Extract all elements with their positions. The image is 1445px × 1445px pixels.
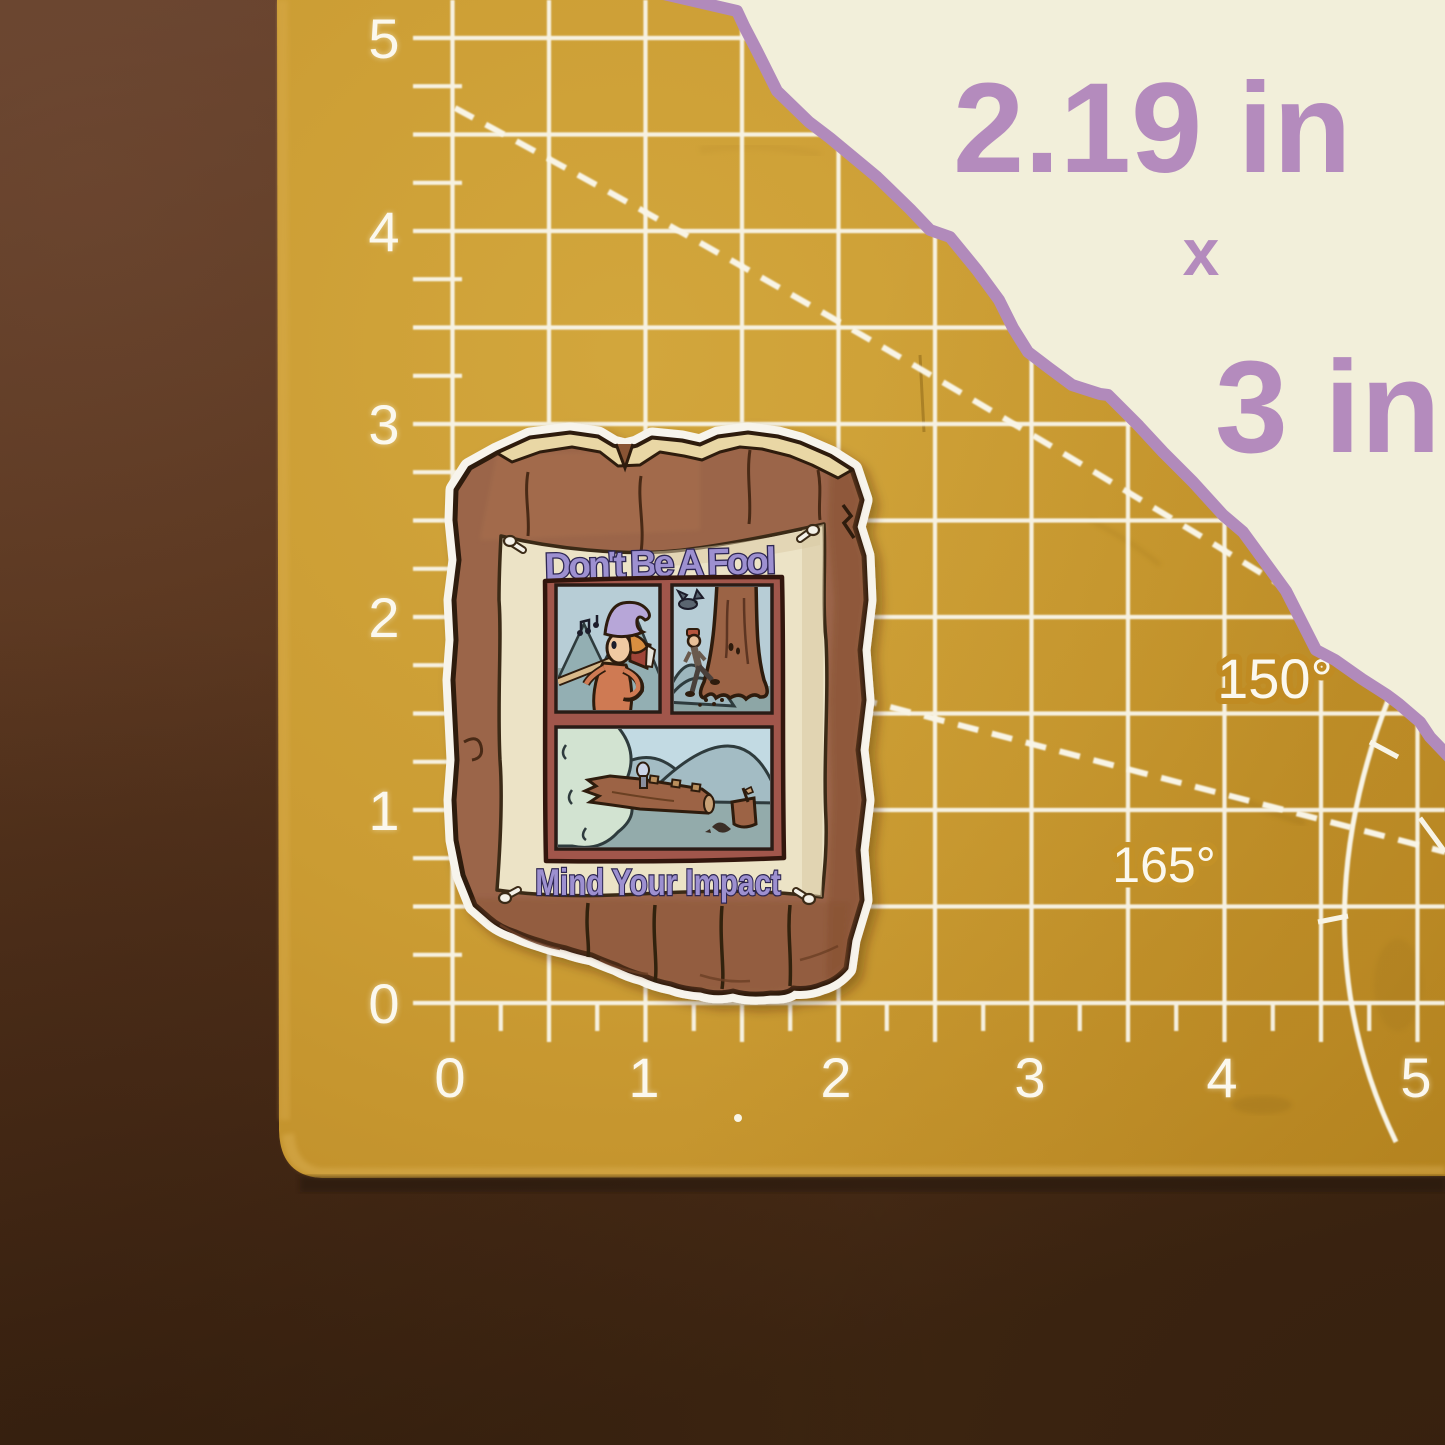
- svg-text:0: 0: [434, 1046, 465, 1109]
- svg-text:1: 1: [368, 779, 399, 842]
- svg-text:3: 3: [368, 393, 399, 456]
- svg-text:2: 2: [368, 586, 399, 649]
- svg-text:1: 1: [628, 1046, 659, 1109]
- svg-text:Mind Your Impact: Mind Your Impact: [535, 863, 781, 904]
- svg-text:165°: 165°: [1112, 837, 1215, 893]
- svg-text:3 in: 3 in: [1215, 333, 1441, 480]
- svg-text:x: x: [1183, 215, 1220, 289]
- svg-text:4: 4: [1206, 1046, 1237, 1109]
- svg-text:2.19 in: 2.19 in: [953, 57, 1351, 200]
- svg-text:5: 5: [1400, 1046, 1431, 1109]
- svg-text:0: 0: [368, 972, 399, 1035]
- svg-text:3: 3: [1014, 1046, 1045, 1109]
- svg-text:5: 5: [368, 7, 399, 70]
- svg-text:4: 4: [368, 200, 399, 263]
- svg-text:2: 2: [820, 1046, 851, 1109]
